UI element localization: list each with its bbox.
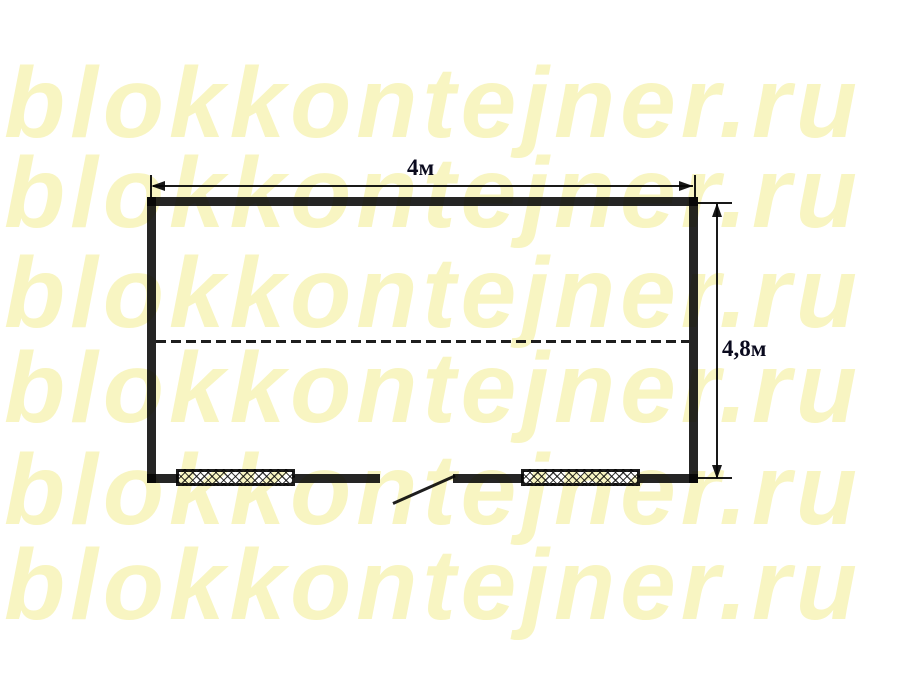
wall-bottom-segment	[453, 474, 523, 483]
window-right	[521, 469, 640, 486]
dimension-arrow-up-icon	[712, 203, 722, 217]
wall-top	[147, 197, 698, 206]
watermark-row: blokkontejner.ru	[4, 535, 862, 635]
wall-left	[147, 197, 156, 483]
partition-dashed-line	[156, 340, 689, 343]
window-left	[176, 469, 295, 486]
width-dimension-label: 4м	[407, 156, 434, 179]
watermark-row: blokkontejner.ru	[4, 243, 862, 343]
dimension-line-horizontal	[153, 185, 693, 187]
dimension-arrow-down-icon	[712, 465, 722, 479]
wall-bottom-segment	[295, 474, 380, 483]
watermark-row: blokkontejner.ru	[4, 440, 862, 540]
dimension-line-vertical	[716, 204, 718, 478]
extension-tick-top-right	[694, 175, 696, 198]
wall-bottom-segment	[640, 474, 698, 483]
floor-plan-image: blokkontejner.ru blokkontejner.ru blokko…	[0, 0, 900, 675]
height-dimension-label: 4,8м	[722, 337, 766, 360]
wall-bottom-segment	[147, 474, 178, 483]
wall-right	[689, 197, 698, 483]
dimension-arrow-left-icon	[151, 181, 165, 191]
dimension-arrow-right-icon	[679, 181, 693, 191]
